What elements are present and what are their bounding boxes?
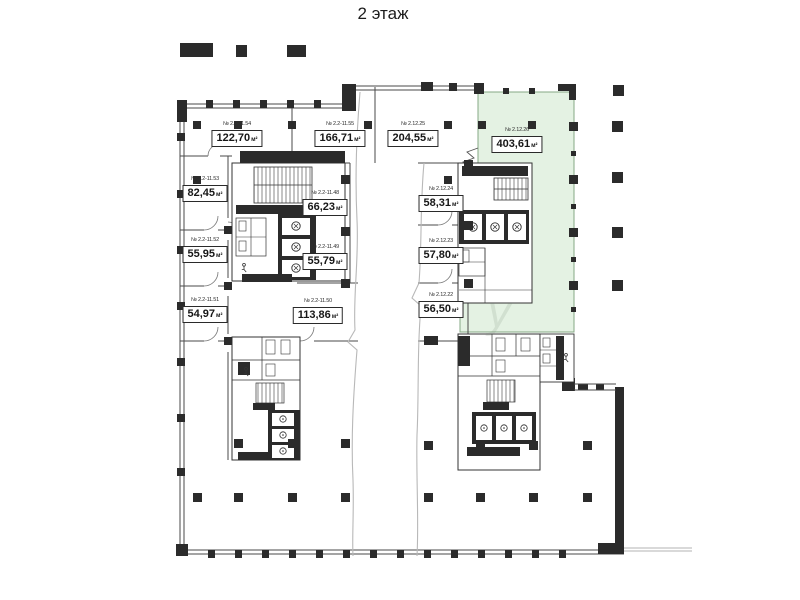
room-number: № 2.2-11.55: [314, 121, 365, 127]
room-number: № 2.2-11.48: [303, 190, 348, 196]
page-title: 2 этаж: [358, 4, 409, 24]
room-label-2-2-11-49[interactable]: № 2.2-11.49 55,79м²: [303, 244, 348, 270]
room-area-box: 113,86м²: [293, 307, 343, 324]
room-label-2-2-11-50[interactable]: № 2.2-11.50 113,86м²: [293, 298, 343, 324]
room-number: № 2.12.25: [387, 121, 438, 127]
room-label-2-2-11-54[interactable]: № 2.2-11.54 122,70м²: [211, 121, 262, 147]
room-area-box: 58,31м²: [419, 195, 464, 212]
room-label-2-2-11-48[interactable]: № 2.2-11.48 66,23м²: [303, 190, 348, 216]
match-lines: [348, 92, 424, 556]
room-area-box: 403,61м²: [491, 136, 542, 153]
room-label-2-2-11-55[interactable]: № 2.2-11.55 166,71м²: [314, 121, 365, 147]
room-number: № 2.2-11.51: [183, 297, 228, 303]
room-area-box: 66,23м²: [303, 199, 348, 216]
wc-block: [540, 334, 574, 382]
room-label-2-2-11-52[interactable]: № 2.2-11.52 55,95м²: [183, 237, 228, 263]
room-number: № 2.2-11.52: [183, 237, 228, 243]
room-area-box: 56,50м²: [419, 301, 464, 318]
room-label-2-12-23[interactable]: № 2.12.23 57,80м²: [419, 238, 464, 264]
room-number: № 2.2-11.49: [303, 244, 348, 250]
room-area-box: 55,95м²: [183, 246, 228, 263]
room-label-2-12-24[interactable]: № 2.12.24 58,31м²: [419, 186, 464, 212]
room-number: № 2.2-11.53: [183, 176, 228, 182]
room-label-2-12-26[interactable]: № 2.12.26 403,61м²: [491, 127, 542, 153]
room-area-box: 204,55м²: [387, 130, 438, 147]
room-area-box: 55,79м²: [303, 253, 348, 270]
floor-plan-page: у 2 этаж № 2.2-11.54 122,70м² № 2.2-11.5…: [0, 0, 800, 600]
room-number: № 2.12.22: [419, 292, 464, 298]
room-number: № 2.12.23: [419, 238, 464, 244]
room-number: № 2.12.26: [491, 127, 542, 133]
room-label-2-12-25[interactable]: № 2.12.25 204,55м²: [387, 121, 438, 147]
room-area-box: 54,97м²: [183, 306, 228, 323]
room-label-2-2-11-51[interactable]: № 2.2-11.51 54,97м²: [183, 297, 228, 323]
site-blocks: [180, 43, 306, 57]
room-area-box: 166,71м²: [314, 130, 365, 147]
room-number: № 2.2-11.50: [293, 298, 343, 304]
room-area-box: 82,45м²: [183, 185, 228, 202]
right-core-lower: [458, 334, 540, 470]
room-area-box: 57,80м²: [419, 247, 464, 264]
room-label-2-12-22[interactable]: № 2.12.22 56,50м²: [419, 292, 464, 318]
floor-plan-drawing: [0, 0, 800, 600]
room-area-box: 122,70м²: [211, 130, 262, 147]
room-label-2-2-11-53[interactable]: № 2.2-11.53 82,45м²: [183, 176, 228, 202]
room-number: № 2.2-11.54: [211, 121, 262, 127]
room-number: № 2.12.24: [419, 186, 464, 192]
